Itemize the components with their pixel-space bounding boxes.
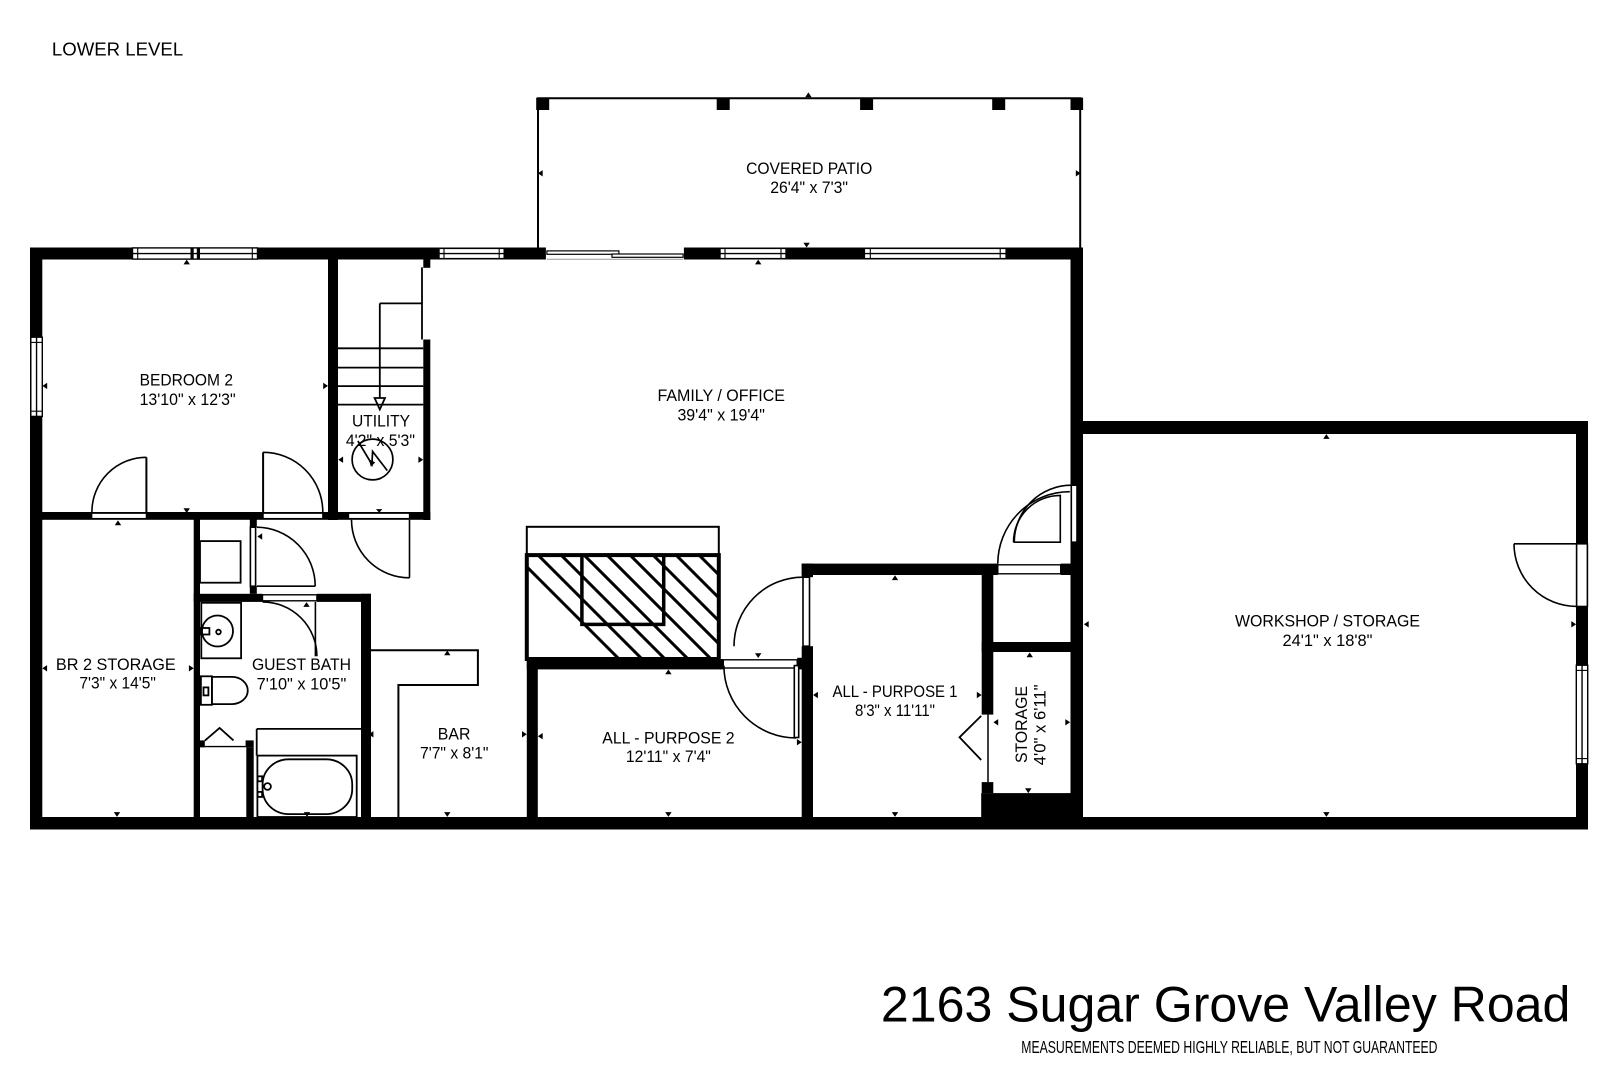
svg-text:24'1" x 18'8": 24'1" x 18'8" [1283, 632, 1373, 650]
svg-text:12'11" x 7'4": 12'11" x 7'4" [626, 748, 711, 766]
svg-text:7'3" x 14'5": 7'3" x 14'5" [79, 675, 156, 693]
svg-text:GUEST BATH: GUEST BATH [252, 656, 351, 674]
svg-text:2163 Sugar Grove Valley Road: 2163 Sugar Grove Valley Road [881, 977, 1571, 1033]
svg-text:BR 2 STORAGE: BR 2 STORAGE [56, 656, 176, 674]
svg-text:4'2" x 5'3": 4'2" x 5'3" [346, 432, 415, 450]
svg-text:13'10" x 12'3": 13'10" x 12'3" [140, 391, 236, 409]
svg-text:7'10" x 10'5": 7'10" x 10'5" [257, 675, 347, 693]
svg-text:26'4" x 7'3": 26'4" x 7'3" [770, 179, 848, 197]
svg-text:ALL - PURPOSE 2: ALL - PURPOSE 2 [602, 729, 734, 747]
svg-text:LOWER LEVEL: LOWER LEVEL [52, 39, 183, 60]
svg-text:BEDROOM 2: BEDROOM 2 [140, 371, 233, 389]
svg-text:BAR: BAR [438, 725, 471, 743]
svg-text:ALL - PURPOSE 1: ALL - PURPOSE 1 [833, 683, 958, 701]
svg-text:39'4" x 19'4": 39'4" x 19'4" [677, 406, 765, 424]
svg-text:7'7" x 8'1": 7'7" x 8'1" [420, 744, 489, 762]
svg-text:FAMILY / OFFICE: FAMILY / OFFICE [657, 387, 785, 405]
svg-text:4'0" x 6'11": 4'0" x 6'11" [1032, 684, 1050, 765]
svg-text:MEASUREMENTS DEEMED HIGHLY REL: MEASUREMENTS DEEMED HIGHLY RELIABLE, BUT… [1021, 1037, 1437, 1057]
svg-text:8'3" x 11'11": 8'3" x 11'11" [855, 702, 935, 720]
svg-text:COVERED PATIO: COVERED PATIO [746, 160, 872, 178]
svg-text:STORAGE: STORAGE [1013, 686, 1031, 763]
svg-text:UTILITY: UTILITY [352, 413, 410, 431]
svg-text:WORKSHOP / STORAGE: WORKSHOP / STORAGE [1235, 612, 1420, 630]
